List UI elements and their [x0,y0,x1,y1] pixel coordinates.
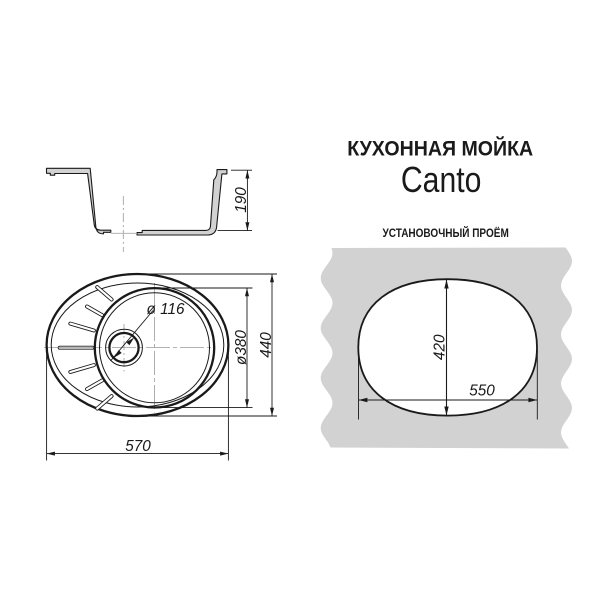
svg-text:550: 550 [469,383,495,400]
svg-text:ø 116: ø 116 [147,301,185,318]
svg-text:420: 420 [432,334,449,360]
svg-text:ø380: ø380 [233,330,250,365]
svg-text:Canto: Canto [401,159,482,200]
svg-text:190: 190 [233,187,250,213]
svg-text:440: 440 [258,332,275,358]
svg-text:УСТАНОВОЧНЫЙ ПРОЁМ: УСТАНОВОЧНЫЙ ПРОЁМ [383,225,509,240]
svg-text:570: 570 [125,438,151,455]
svg-text:КУХОННАЯ МОЙКА: КУХОННАЯ МОЙКА [347,136,533,161]
